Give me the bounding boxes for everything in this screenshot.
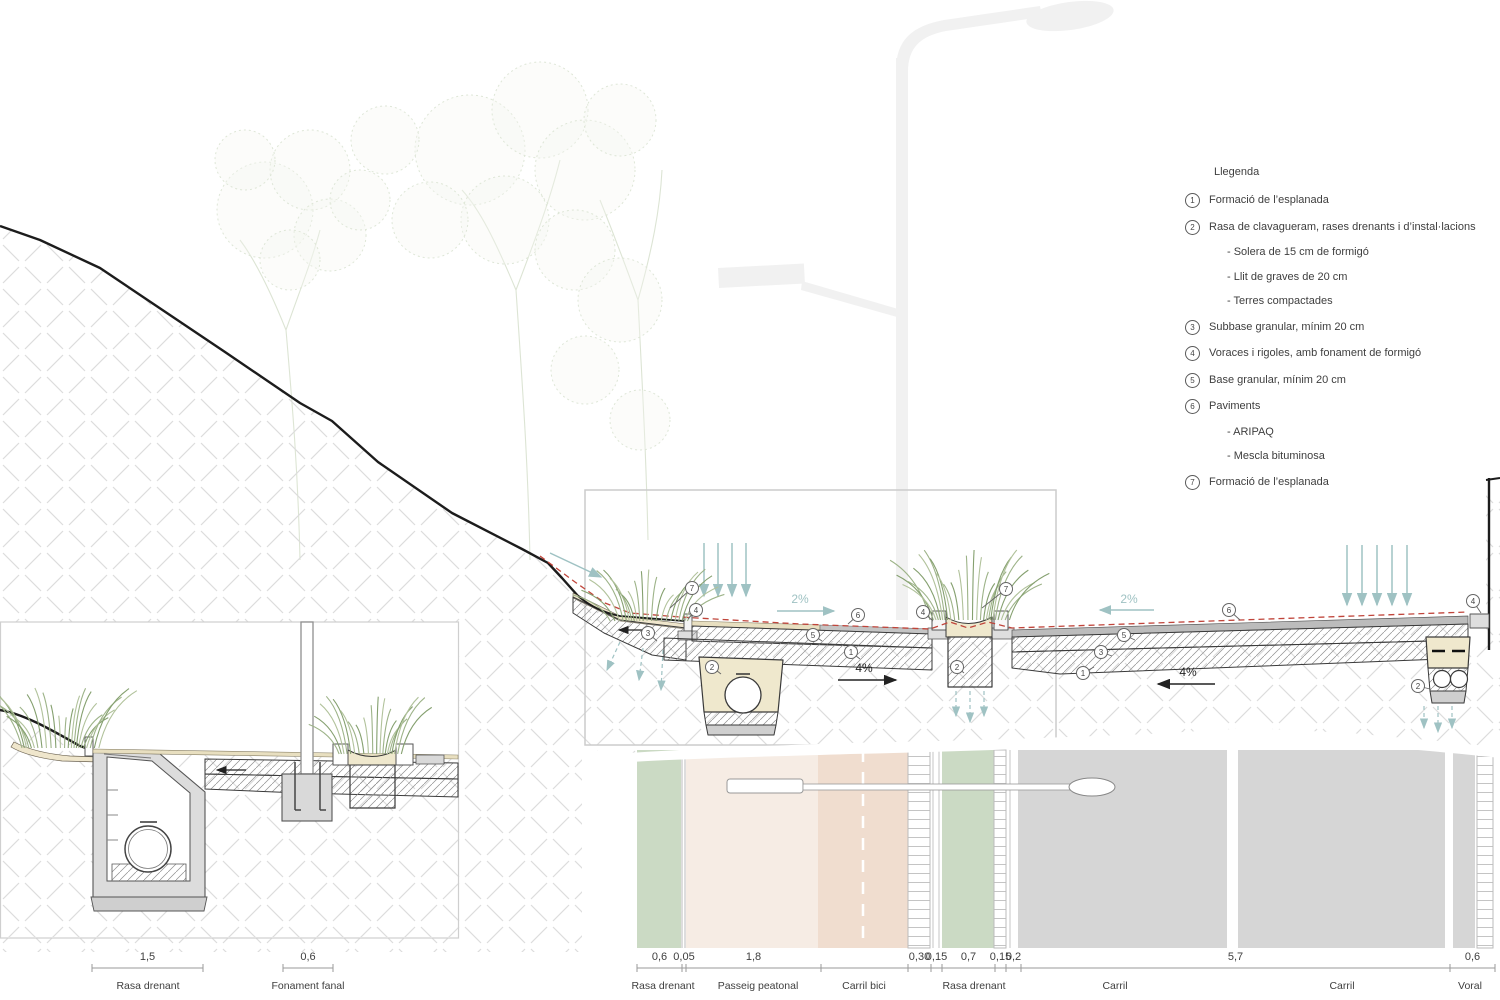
zone-label: Carril	[1102, 980, 1127, 992]
callout-4: 4	[688, 604, 703, 620]
zone-label: Rasa drenant	[631, 980, 694, 992]
svg-text:5: 5	[1122, 631, 1127, 640]
svg-text:2%: 2%	[1120, 592, 1138, 606]
svg-text:2: 2	[1416, 682, 1421, 691]
zone-label: Passeig peatonal	[718, 980, 799, 992]
dimension-label: 0,6	[300, 951, 315, 963]
slope-arrow: 2%	[777, 592, 834, 611]
callout-4: 4	[1467, 595, 1482, 614]
callout-6: 6	[848, 609, 865, 625]
zone-label: Rasa drenant	[116, 980, 179, 992]
svg-text:4: 4	[1471, 597, 1476, 606]
svg-text:5: 5	[811, 631, 816, 640]
dimension-strip: 0,60,051,80,300,150,70,150,25,70,6Rasa d…	[631, 951, 1495, 992]
legend-item: 6Paviments	[1185, 399, 1490, 414]
legend-item-number: 7	[1185, 475, 1200, 490]
legend-item-label: Rasa de clavagueram, rases drenants i d’…	[1209, 220, 1476, 234]
legend-item-label: Formació de l’esplanada	[1209, 475, 1329, 489]
legend-item-label: Formació de l’esplanada	[1209, 193, 1329, 207]
svg-text:7: 7	[1004, 585, 1009, 594]
legend-item: 3Subbase granular, mínim 20 cm	[1185, 320, 1490, 335]
legend-items: 1Formació de l’esplanada2Rasa de clavagu…	[1185, 193, 1490, 490]
plan-view	[637, 750, 1493, 948]
dimension-label: 1,8	[746, 951, 761, 963]
dimension-label: 1,5	[140, 951, 155, 963]
legend-item: 5Base granular, mínim 20 cm	[1185, 373, 1490, 388]
svg-text:1: 1	[849, 648, 854, 657]
svg-text:2: 2	[710, 663, 715, 672]
legend-item-number: 4	[1185, 346, 1200, 361]
svg-text:4%: 4%	[1179, 665, 1197, 679]
legend-item-label: Subbase granular, mínim 20 cm	[1209, 320, 1364, 334]
legend-item-number: 3	[1185, 320, 1200, 335]
legend-item-label: Base granular, mínim 20 cm	[1209, 373, 1346, 387]
legend-title: Llegenda	[1214, 166, 1490, 179]
zone-label: Carril	[1329, 980, 1354, 992]
drawing-sheet: 74326514721356242%2%4%4% 0,60,051,80,300…	[0, 0, 1500, 1000]
svg-text:4%: 4%	[855, 661, 873, 675]
dimension-label: 5,7	[1228, 951, 1243, 963]
svg-text:2%: 2%	[791, 592, 809, 606]
sewer-pipe	[725, 677, 761, 713]
dimension-label: 0,2	[1006, 951, 1021, 963]
svg-text:6: 6	[856, 611, 861, 620]
legend-item-label: Voraces i rigoles, amb fonament de formi…	[1209, 346, 1421, 360]
legend-item-number: 1	[1185, 193, 1200, 208]
dimension-strip: 1,50,6Rasa drenantFonament fanal	[92, 951, 344, 992]
zone-label: Voral	[1458, 980, 1482, 992]
legend-item-number: 2	[1185, 220, 1200, 235]
slope-arrow: 2%	[1100, 592, 1154, 610]
callout-2: 2	[951, 661, 965, 674]
svg-text:4: 4	[921, 608, 926, 617]
dimension-label: 0,05	[673, 951, 694, 963]
utility-trench	[1426, 637, 1470, 703]
svg-text:7: 7	[690, 584, 695, 593]
legend-item: 1Formació de l’esplanada	[1185, 193, 1490, 208]
legend-item-number: 5	[1185, 373, 1200, 388]
svg-text:2: 2	[955, 663, 960, 672]
legend-item-number: 6	[1185, 399, 1200, 414]
legend-item: 7Formació de l’esplanada	[1185, 475, 1490, 490]
dimension-label: 0,15	[926, 951, 947, 963]
svg-text:3: 3	[1099, 648, 1104, 657]
legend-sub-item: - Terres compactades	[1227, 295, 1490, 308]
grass-tuft	[890, 550, 1049, 620]
svg-text:3: 3	[646, 629, 651, 638]
dimension-label: 0,6	[652, 951, 667, 963]
legend-sub-item: - Llit de graves de 20 cm	[1227, 271, 1490, 284]
svg-text:1: 1	[1081, 669, 1086, 678]
zone-label: Rasa drenant	[942, 980, 1005, 992]
zone-label: Carril bici	[842, 980, 886, 992]
legend-sub-item: - Mescla bituminosa	[1227, 450, 1490, 463]
legend-item-label: Paviments	[1209, 399, 1260, 413]
legend-sub-item: - Solera de 15 cm de formigó	[1227, 246, 1490, 259]
dimension-label: 0,7	[961, 951, 976, 963]
legend-sub-item: - ARIPAQ	[1227, 426, 1490, 439]
legend-item: 2Rasa de clavagueram, rases drenants i d…	[1185, 220, 1490, 235]
legend: Llegenda 1Formació de l’esplanada2Rasa d…	[1185, 166, 1490, 501]
svg-text:4: 4	[694, 606, 699, 615]
dimension-layer: 0,60,051,80,300,150,70,150,25,70,6Rasa d…	[92, 951, 1495, 992]
detail-inset	[0, 622, 459, 938]
callout-6: 6	[1223, 604, 1241, 621]
svg-text:6: 6	[1227, 606, 1232, 615]
dimension-label: 0,6	[1465, 951, 1480, 963]
legend-item: 4Voraces i rigoles, amb fonament de form…	[1185, 346, 1490, 361]
zone-label: Fonament fanal	[272, 980, 345, 992]
